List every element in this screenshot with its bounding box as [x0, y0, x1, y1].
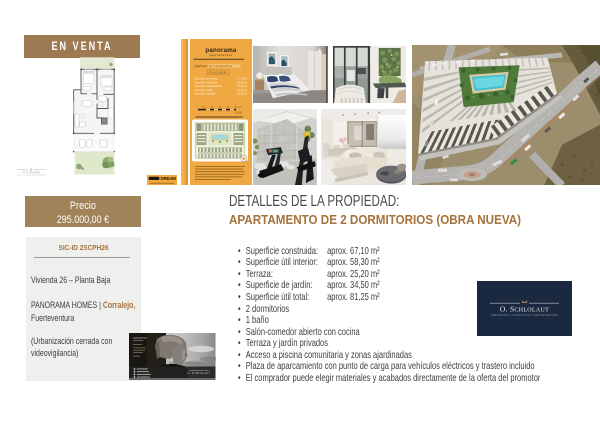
svg-text:≈1/100: ≈1/100	[235, 112, 243, 115]
svg-text:O. SCHLOLAUT: O. SCHLOLAUT	[500, 304, 549, 313]
svg-text:67,10 m²: 67,10 m²	[237, 78, 247, 81]
svg-text:m: m	[239, 106, 241, 109]
svg-text:IMMOBILIEN & CONSULTING FUERTE: IMMOBILIEN & CONSULTING FUERTEVENTURA	[16, 174, 46, 177]
svg-text:Typ 1 Erdgeschoss: Typ 1 Erdgeschoss	[209, 64, 233, 68]
svg-text:Superficie útil total: Superficie útil total	[195, 93, 216, 96]
svg-text:34,50 m²: 34,50 m²	[237, 89, 247, 92]
svg-text:Apartment: Apartment	[195, 64, 208, 68]
svg-text:58,30 m²: 58,30 m²	[237, 81, 247, 84]
svg-text:apartamentos: apartamentos	[209, 53, 232, 57]
svg-text:IMMOBILIEN & CONSULTING FUERTE: IMMOBILIEN & CONSULTING FUERTEVENTURA	[491, 314, 558, 317]
svg-text:Superficie construida: Superficie construida	[195, 78, 219, 81]
svg-text:FLÄCHEN: FLÄCHEN	[209, 71, 226, 75]
svg-text:Superficie Terraza/Jardín: Superficie Terraza/Jardín	[195, 85, 223, 88]
svg-text:Superficie Jardín: Superficie Jardín	[195, 89, 214, 92]
svg-text:25,20 m²: 25,20 m²	[237, 85, 247, 88]
svg-text:O. Schlolaut: O. Schlolaut	[22, 170, 40, 174]
svg-text:Superficie útil interior: Superficie útil interior	[195, 81, 219, 84]
svg-text:O. SCHLOLAUT: O. SCHLOLAUT	[188, 372, 211, 375]
svg-text:DREAM: DREAM	[160, 176, 176, 181]
svg-text:81,25 m²: 81,25 m²	[237, 93, 247, 96]
